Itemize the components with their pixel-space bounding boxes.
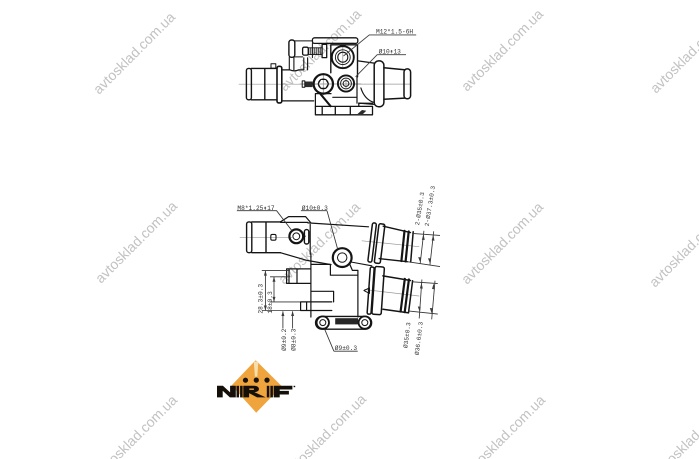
svg-text:avtosklad.com.ua: avtosklad.com.ua [281, 391, 370, 459]
svg-text:M8*1.25↟17: M8*1.25↟17 [237, 205, 274, 212]
svg-text:Ø10±0.3: Ø10±0.3 [302, 205, 328, 212]
svg-text:avtosklad.com.ua: avtosklad.com.ua [646, 202, 699, 291]
svg-text:18±0.3: 18±0.3 [267, 291, 274, 314]
svg-text:28.3±0.3: 28.3±0.3 [258, 284, 265, 314]
svg-text:M12*1.5-6H: M12*1.5-6H [376, 29, 413, 36]
svg-text:2-Ø37.3±0.3: 2-Ø37.3±0.3 [424, 185, 437, 227]
svg-text:Ø9±0.2: Ø9±0.2 [281, 328, 288, 351]
svg-text:avtosklad.com.ua: avtosklad.com.ua [650, 392, 699, 459]
svg-text:avtosklad.com.ua: avtosklad.com.ua [458, 6, 547, 95]
svg-text:avtosklad.com.ua: avtosklad.com.ua [458, 199, 547, 288]
svg-text:Ø9±0.3: Ø9±0.3 [335, 345, 358, 352]
svg-text:avtosklad.com.ua: avtosklad.com.ua [460, 392, 549, 459]
svg-text:Ø8±0.3: Ø8±0.3 [290, 328, 297, 351]
svg-text:avtosklad.com.ua: avtosklad.com.ua [647, 8, 699, 97]
svg-text:avtosklad.com.ua: avtosklad.com.ua [92, 392, 181, 459]
svg-text:avtosklad.com.ua: avtosklad.com.ua [92, 198, 181, 287]
svg-text:avtosklad.com.ua: avtosklad.com.ua [90, 9, 179, 98]
svg-text:Ø10↟13: Ø10↟13 [379, 48, 402, 55]
svg-text:Ø35±0.3: Ø35±0.3 [402, 322, 412, 349]
svg-text:Ø36.6±0.3: Ø36.6±0.3 [414, 321, 425, 355]
